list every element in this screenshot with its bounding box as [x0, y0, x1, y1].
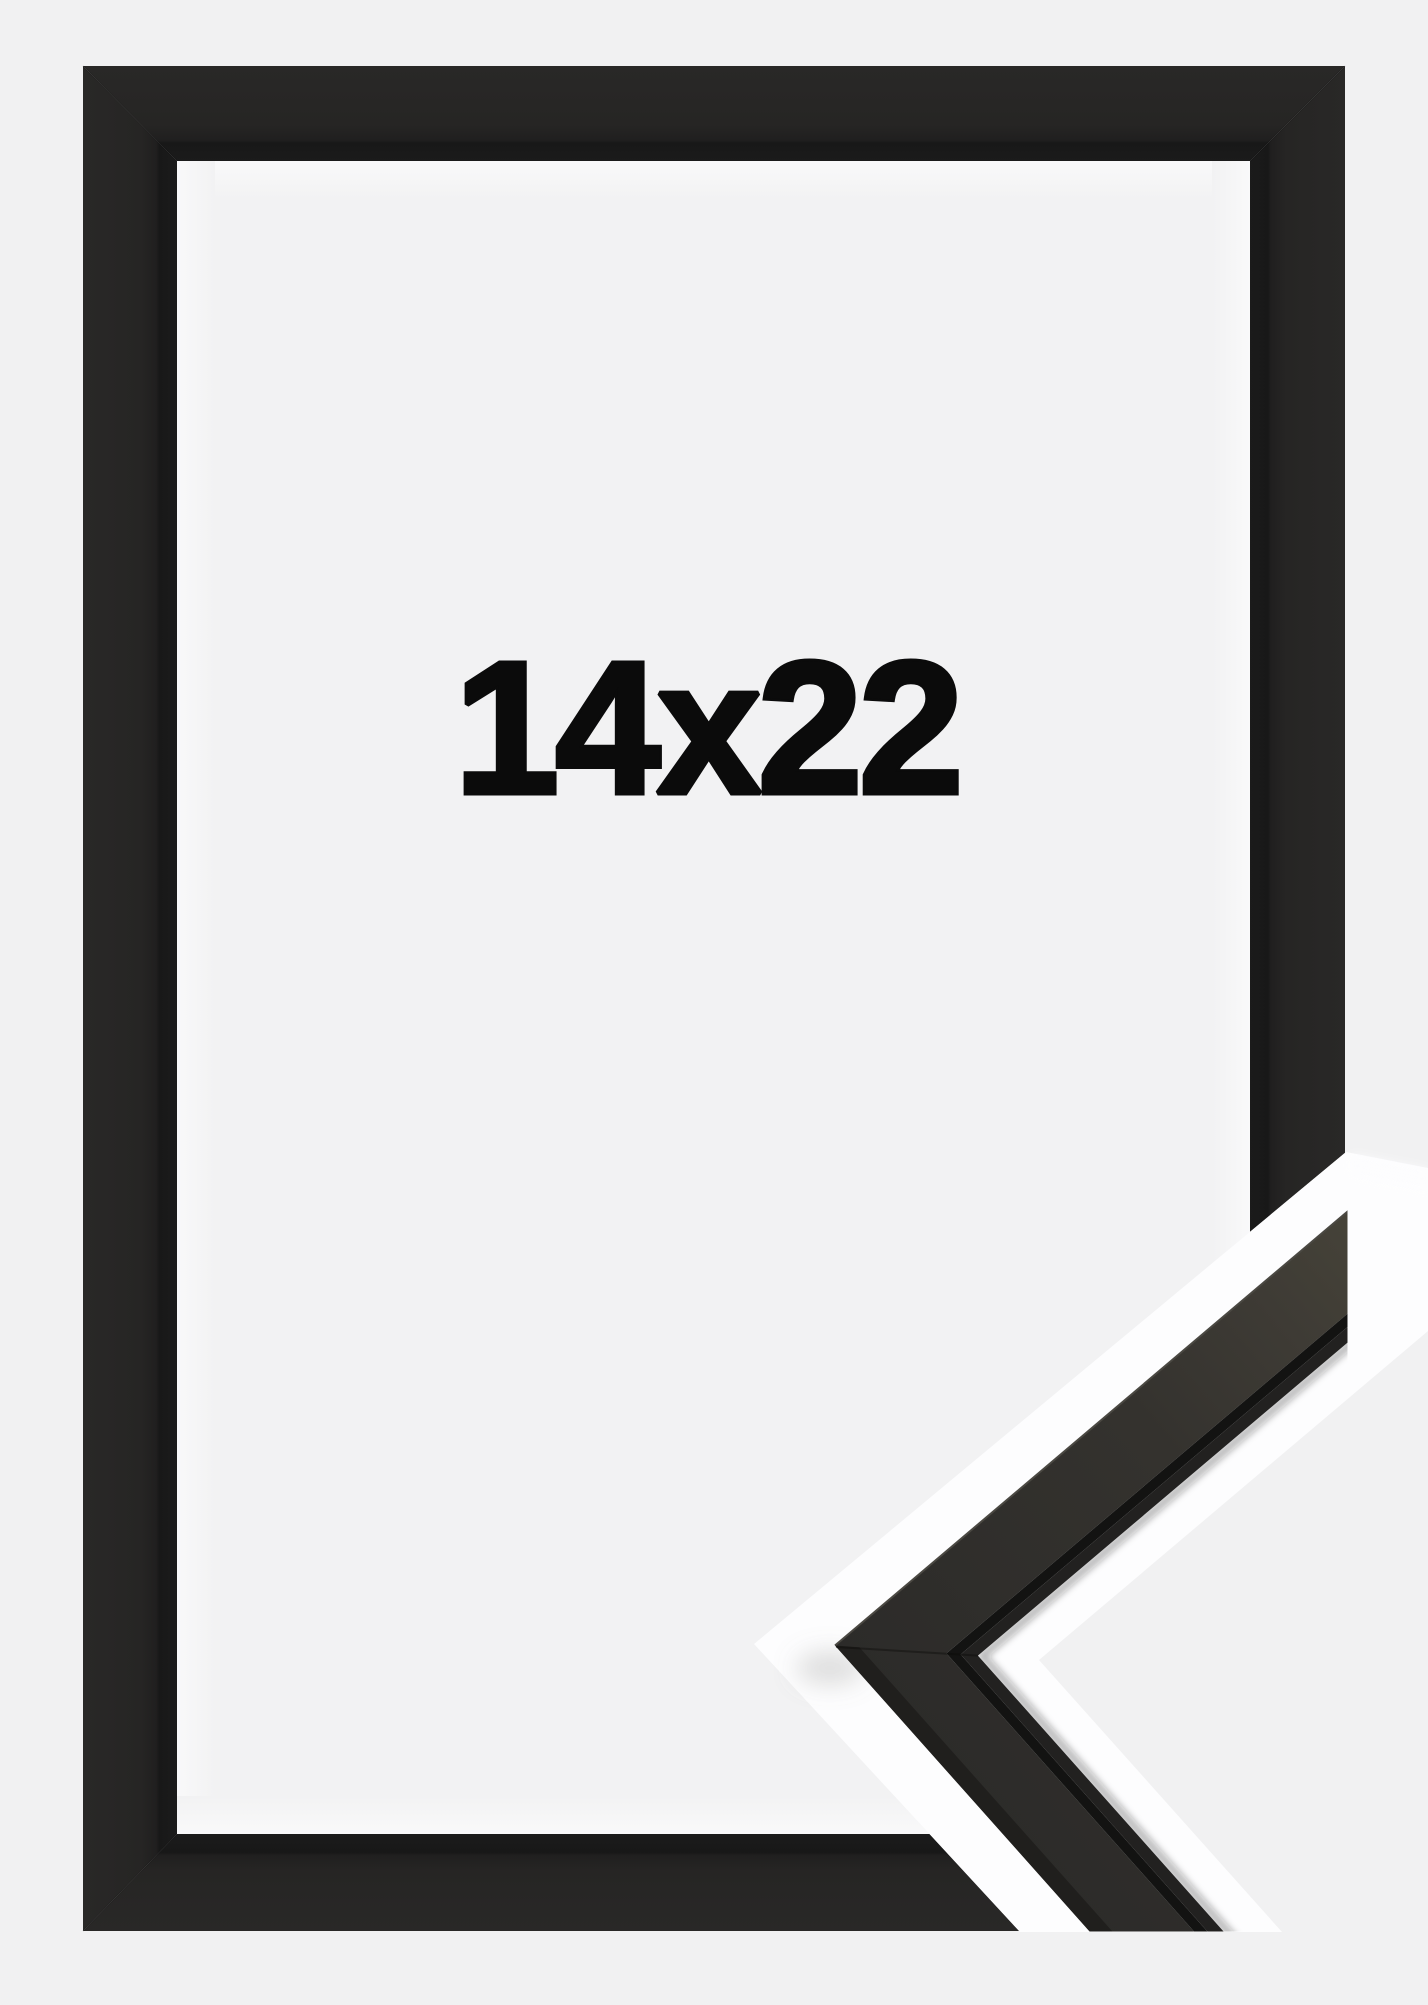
svg-text:14x22: 14x22	[454, 623, 960, 834]
